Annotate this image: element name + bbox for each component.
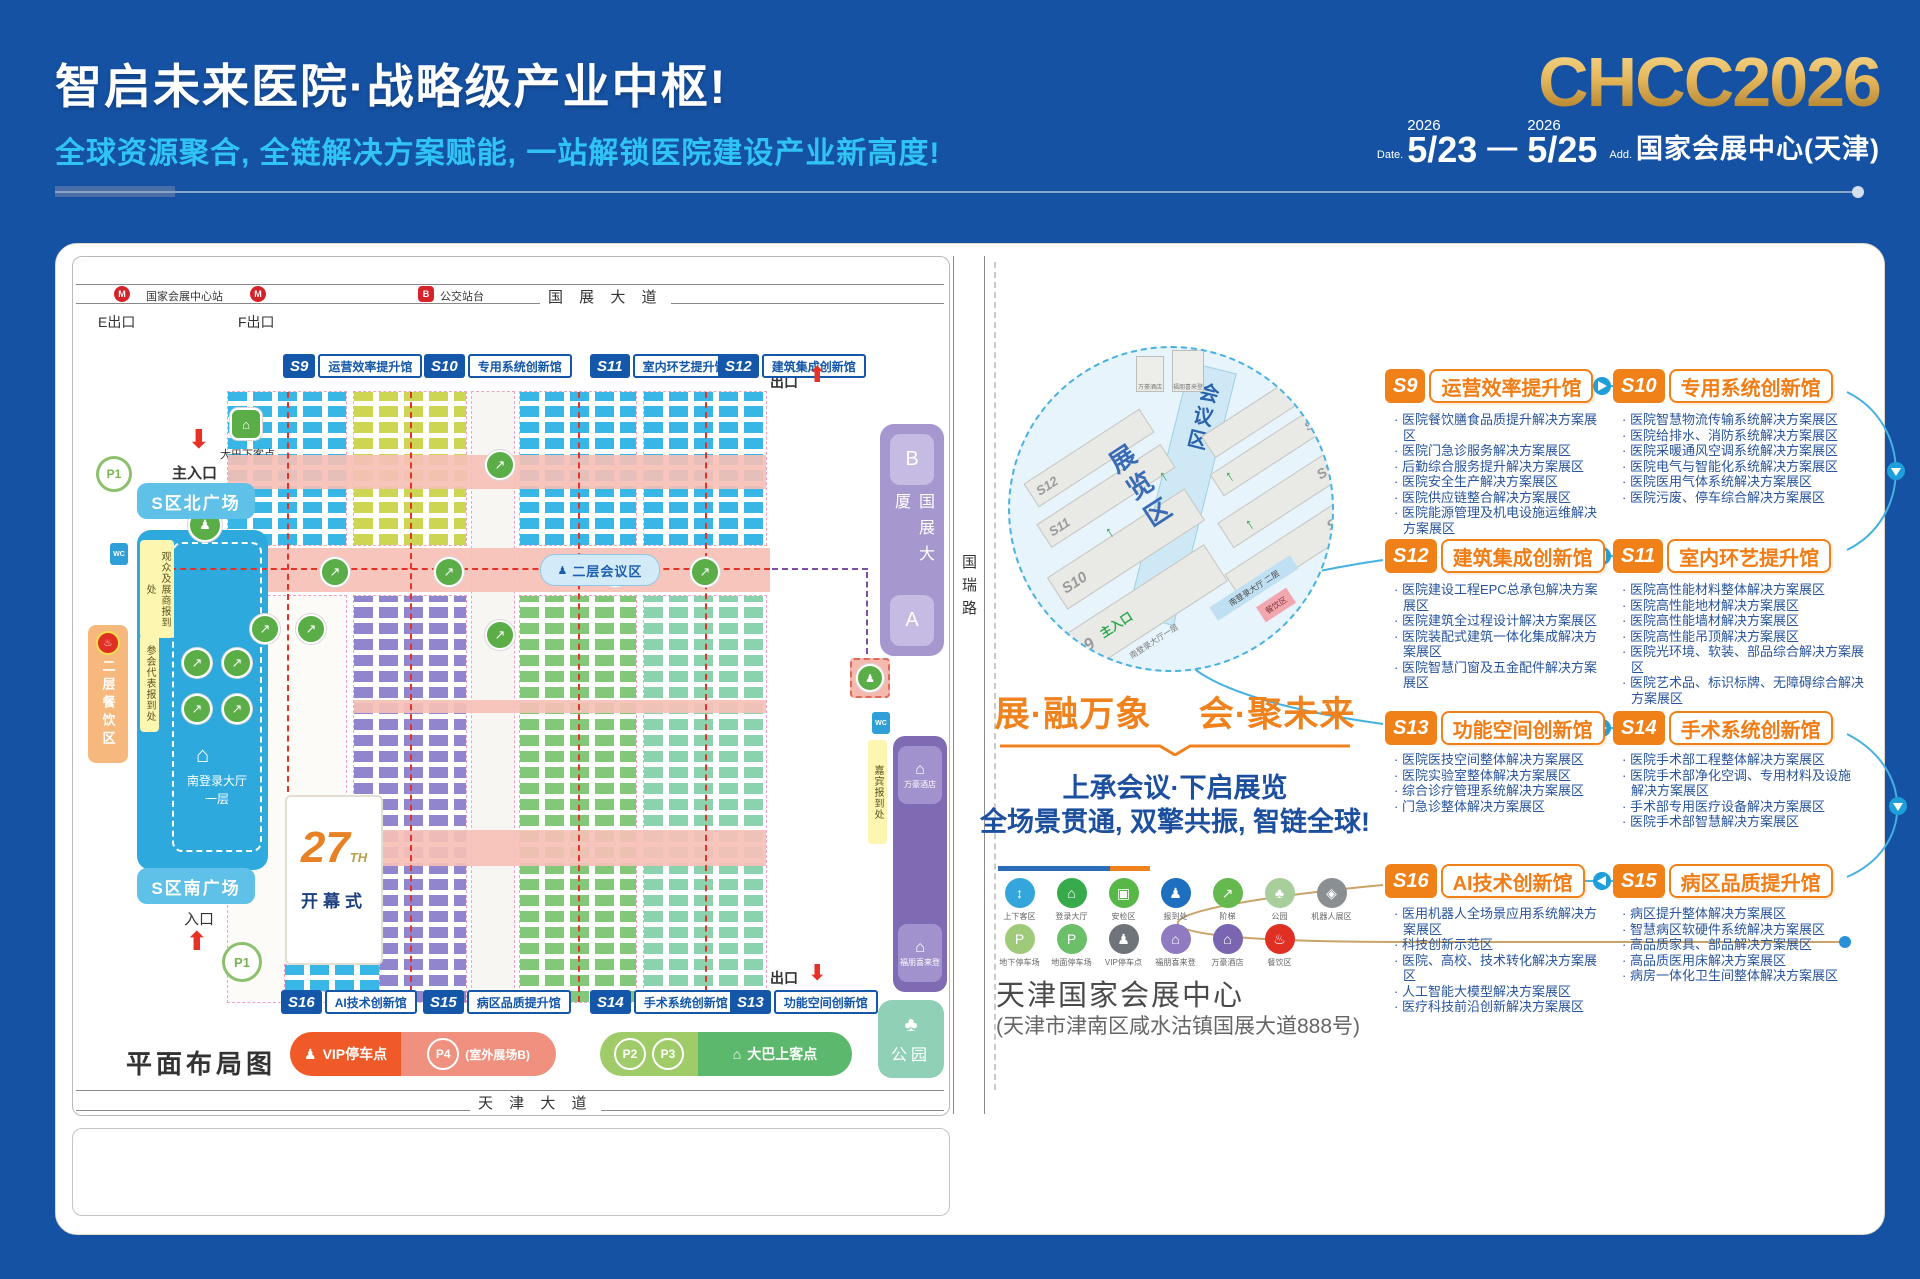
- hall-name: 手术系统创新馆: [634, 990, 738, 1014]
- list-item: 综合诊疗管理系统解决方案展区: [1390, 783, 1608, 799]
- date-end: 20265/25: [1527, 118, 1597, 167]
- guest-registration-label: 嘉宾报到处: [868, 740, 887, 844]
- legend-label: 登录大厅: [1049, 910, 1094, 921]
- p1-parking-icon: P1: [96, 456, 132, 492]
- list-item: 高品质家具、部品解决方案展区: [1618, 937, 1868, 953]
- north-plaza: S区北广场: [137, 483, 255, 519]
- opening-label: 开幕式: [287, 887, 381, 912]
- hall-badge: S11: [590, 354, 630, 378]
- vip-parking-label: VIP停车点: [323, 1044, 388, 1064]
- legend-label: 机器人展区: [1309, 910, 1354, 921]
- opening-27: 27: [301, 823, 350, 872]
- exit-e-label: E出口: [98, 312, 135, 332]
- section-badge: S11: [1613, 539, 1663, 573]
- hotel-marriott-label: 万豪酒店: [904, 779, 936, 790]
- list-item: 医院高性能材料整体解决方案展区: [1618, 582, 1868, 598]
- list-item: 医院智慧物流传输系统解决方案展区: [1618, 412, 1863, 428]
- hall-label-s12: S12 建筑集成创新馆: [718, 354, 866, 378]
- escalator-icon: ↗: [182, 648, 212, 678]
- list-item: 医院光环境、软装、部品综合解决方案展区: [1618, 644, 1868, 675]
- list-item: 医院采暖通风空调系统解决方案展区: [1618, 443, 1863, 459]
- legend-label: 阶梯: [1205, 910, 1250, 921]
- list-item: 病房一体化卫生间整体解决方案展区: [1618, 968, 1868, 984]
- right-road-line: [953, 256, 954, 1114]
- venue-address: (天津市津南区咸水沽镇国展大道888号): [996, 1010, 1360, 1040]
- list-item: 病区提升整体解决方案展区: [1618, 906, 1868, 922]
- hall-label-s16: S16 AI技术创新馆: [281, 990, 417, 1014]
- section-title: 病区品质提升馆: [1669, 864, 1833, 898]
- underground-parking-icon: P: [1005, 924, 1035, 954]
- section-badge: S15: [1613, 864, 1665, 898]
- list-item: 医疗科技前沿创新解决方案展区: [1390, 999, 1608, 1015]
- exit-bottom-label: 出口: [770, 968, 798, 988]
- ncc-tower: B 国展大厦 A: [880, 424, 944, 656]
- slogan-right: 会·聚未来: [1199, 695, 1356, 734]
- list-item: 医院门急诊服务解决方案展区: [1390, 443, 1608, 459]
- section-badge: S10: [1613, 369, 1665, 403]
- dining-label: 二层餐饮区: [99, 659, 118, 749]
- chcc-logo: CHCC2026: [1538, 42, 1880, 122]
- opening-th: TH: [350, 850, 367, 865]
- slogan: 展·融万象 会·聚未来: [985, 686, 1365, 737]
- main-entrance-label: 主入口: [172, 462, 217, 483]
- section-badge: S16: [1385, 864, 1437, 898]
- section-s12: S12 建筑集成创新馆: [1385, 539, 1605, 573]
- food-icon: ♨: [96, 631, 120, 655]
- legend-label: 报到处: [1153, 910, 1198, 921]
- hotel-box: ⌂ 万豪酒店 ⌂ 福朋喜来登: [893, 736, 947, 992]
- legend-item: ♟VIP停车点: [1100, 924, 1147, 968]
- legend-item: ▣安检区: [1100, 878, 1147, 922]
- escalator-icon: ↗: [485, 450, 515, 480]
- hall-label-s11: S11 室内环艺提升馆: [590, 354, 737, 378]
- bus-stop-icon: B: [418, 286, 434, 302]
- south-plaza: S区南广场: [137, 868, 255, 904]
- hall-label-s13: S13 功能空间创新馆: [730, 990, 878, 1014]
- escalator-icon: ↗: [250, 614, 280, 644]
- legend-label: 上下客区: [997, 910, 1042, 921]
- section-s9: S9 运营效率提升馆: [1385, 369, 1593, 403]
- top-road-line: [76, 284, 944, 285]
- list-item: 医院能源管理及机电设施运维解决方案展区: [1390, 505, 1608, 536]
- section-s16-list: 医用机器人全场景应用系统解决方案展区科技创新示范区医院、高校、技术转化解决方案展…: [1390, 906, 1608, 1015]
- legend-item: ↕上下客区: [996, 878, 1043, 922]
- login-hall-icon: ⌂: [1057, 878, 1087, 908]
- hotel-fourpoints: ⌂ 福朋喜来登: [898, 924, 942, 982]
- legend-label: 地下停车场: [997, 956, 1042, 967]
- bus-pickup-label: 大巴上客点: [747, 1044, 817, 1064]
- guest-reg-gate: ♟: [850, 658, 890, 698]
- list-item: 门急诊整体解决方案展区: [1390, 799, 1608, 815]
- list-item: 医院高性能吊顶解决方案展区: [1618, 629, 1868, 645]
- p3-icon: P3: [652, 1038, 684, 1070]
- legend-bar-orange: [1110, 866, 1150, 871]
- legend-label: 万豪酒店: [1205, 956, 1250, 967]
- legend-label: VIP停车点: [1101, 956, 1146, 967]
- legend-item: ⌂福朋喜来登: [1152, 924, 1199, 968]
- legend-label: 安检区: [1101, 910, 1146, 921]
- opening-ceremony-box: 27TH 开幕式: [285, 795, 383, 965]
- p4-icon: P4: [427, 1038, 459, 1070]
- section-s14-list: 医院手术部工程整体解决方案展区医院手术部净化空调、专用材料及设施解决方案展区手术…: [1618, 752, 1858, 830]
- hall-name: 病区品质提升馆: [467, 990, 571, 1014]
- section-badge: S14: [1613, 711, 1665, 745]
- list-item: 医院、高校、技术转化解决方案展区: [1390, 953, 1608, 984]
- hall-name: 专用系统创新馆: [468, 354, 572, 378]
- legend-bar-blue: [998, 866, 1110, 871]
- tower-name: 国展大厦: [888, 493, 936, 587]
- login-floor-label: 一层: [172, 790, 262, 807]
- p4-seg: P4 (室外展场B): [401, 1032, 556, 1076]
- list-item: 医院手术部智慧解决方案展区: [1618, 814, 1858, 830]
- list-item: 医院装配式建筑一体化集成解决方案展区: [1390, 629, 1608, 660]
- list-item: 医院艺术品、标识标牌、无障碍综合解决方案展区: [1618, 675, 1868, 706]
- section-s16: S16 AI技术创新馆: [1385, 864, 1585, 898]
- route-line: [410, 392, 412, 1002]
- section-s15-list: 病区提升整体解决方案展区智慧病区软硬件系统解决方案展区高品质家具、部品解决方案展…: [1618, 906, 1868, 984]
- route-line: [705, 392, 707, 1002]
- hotel-marriott: ⌂ 万豪酒店: [898, 746, 942, 804]
- venue-name-cn: 天津国家会展中心: [996, 972, 1244, 1014]
- divider-line: [55, 191, 1860, 193]
- legend-label: 公园: [1257, 910, 1302, 921]
- right-road-label: 国瑞路: [958, 548, 979, 629]
- conference-area-label: 二层会议区: [572, 561, 642, 580]
- p1-parking-icon-2: P1: [222, 942, 262, 982]
- poster: 智启未来医院·战略级产业中枢! 全球资源聚合, 全链解决方案赋能, 一站解锁医院…: [0, 0, 1920, 1279]
- p4-note: (室外展场B): [465, 1046, 530, 1063]
- delegate-registration-label: 参会代表报到处: [140, 634, 159, 732]
- divider-dot: [1852, 186, 1864, 198]
- date-start: 20265/23: [1407, 118, 1477, 167]
- hall-label-s14: S14 手术系统创新馆: [590, 990, 738, 1014]
- route-line: [287, 392, 289, 792]
- section-s14: S14 手术系统创新馆: [1613, 711, 1833, 745]
- hotel-fourpoints-label: 福朋喜来登: [900, 957, 940, 968]
- list-item: 医院高性能地材解决方案展区: [1618, 598, 1868, 614]
- hotel-mini-2: 福朋喜来登: [1172, 350, 1204, 392]
- list-item: 后勤综合服务提升解决方案展区: [1390, 459, 1608, 475]
- list-item: 医院给排水、消防系统解决方案展区: [1618, 428, 1863, 444]
- people-icon: ♟: [558, 564, 569, 577]
- section-s10: S10 专用系统创新馆: [1613, 369, 1833, 403]
- bus-icon: ⌂: [733, 1046, 741, 1062]
- p2p3-seg: P2 P3: [600, 1032, 698, 1076]
- building-icon: ⌂: [196, 742, 209, 768]
- metro-icon-2: M: [250, 286, 266, 302]
- bottom-road-label: 天 津 大 道: [470, 1092, 601, 1113]
- main-corridor: [212, 548, 770, 592]
- list-item: 科技创新示范区: [1390, 937, 1608, 953]
- hall-badge: S16: [281, 990, 322, 1014]
- legend-row-2: P地下停车场 P地面停车场 ♟VIP停车点 ⌂福朋喜来登 ⌂万豪酒店 ♨餐饮区: [996, 924, 1303, 968]
- dining-area: ♨ 二层餐饮区: [88, 625, 128, 763]
- legend-label: 地面停车场: [1049, 956, 1094, 967]
- sub-slogan-2: 全场景贯通, 双擎共振, 智链全球!: [960, 800, 1390, 839]
- escalator-icon: ↗: [320, 557, 350, 587]
- visitor-registration-label: 观众及展商报到处: [140, 540, 174, 638]
- legend-item: ⌂万豪酒店: [1204, 924, 1251, 968]
- section-s13: S13 功能空间创新馆: [1385, 711, 1605, 745]
- hall-badge: S9: [283, 354, 315, 378]
- section-s9-list: 医院餐饮膳食品质提升解决方案展区医院门急诊服务解决方案展区后勤综合服务提升解决方…: [1390, 412, 1608, 536]
- marriott-icon: ⌂: [1213, 924, 1243, 954]
- venue-name: 国家会展中心(天津): [1636, 127, 1880, 166]
- list-item: 医院污废、停车综合解决方案展区: [1618, 490, 1863, 506]
- wc-icon: WC: [110, 543, 128, 565]
- list-item: 医院建筑全过程设计解决方案展区: [1390, 613, 1608, 629]
- main-entrance-arrow-icon: ⬇: [188, 424, 210, 455]
- section-title: 专用系统创新馆: [1669, 369, 1833, 403]
- section-badge: S12: [1385, 539, 1437, 573]
- legend-item: ↗阶梯: [1204, 878, 1251, 922]
- hall-label-s9: S9 运营效率提升馆: [283, 354, 422, 378]
- escalator-icon: ↗: [222, 694, 252, 724]
- date-dash: —: [1487, 131, 1517, 165]
- escalator-icon: ↗: [182, 694, 212, 724]
- hall-name: AI技术创新馆: [325, 990, 417, 1014]
- registration-icon: ♟: [1161, 878, 1191, 908]
- legend-item: ♣公园: [1256, 878, 1303, 922]
- pickup-zone-icon: ↕: [1005, 878, 1035, 908]
- vip-parking-icon: ♟: [1109, 924, 1139, 954]
- legend-item: ♟报到处: [1152, 878, 1199, 922]
- section-s11-list: 医院高性能材料整体解决方案展区医院高性能地材解决方案展区医院高性能墙材解决方案展…: [1618, 582, 1868, 706]
- list-item: 医院智慧门窗及五金配件解决方案展区: [1390, 660, 1608, 691]
- park-label: 公园: [891, 1041, 931, 1065]
- section-s12-list: 医院建设工程EPC总承包解决方案展区医院建筑全过程设计解决方案展区医院装配式建筑…: [1390, 582, 1608, 691]
- escalator-icon: ↗: [296, 614, 326, 644]
- robot-zone-icon: ◈: [1317, 878, 1347, 908]
- section-s15: S15 病区品质提升馆: [1613, 864, 1833, 898]
- date-prefix: Date.: [1377, 149, 1403, 161]
- conference-area-pill: ♟ 二层会议区: [540, 554, 660, 586]
- exit-bottom-arrow-icon: ⬇: [808, 960, 826, 986]
- park-icon: ♣: [1265, 878, 1295, 908]
- metro-icon: M: [114, 286, 130, 302]
- list-item: 医院手术部工程整体解决方案展区: [1618, 752, 1858, 768]
- stairs-icon: ↗: [1213, 878, 1243, 908]
- section-badge: S13: [1385, 711, 1437, 745]
- legend-item: P地下停车场: [996, 924, 1043, 968]
- section-badge: S9: [1385, 369, 1425, 403]
- list-item: 医院医用气体系统解决方案展区: [1618, 474, 1863, 490]
- legend-label: 餐饮区: [1257, 956, 1302, 967]
- vip-person-icon: ♟: [304, 1046, 317, 1063]
- slogan-left: 展·融万象: [995, 695, 1152, 734]
- vip-parking-seg: ♟ VIP停车点: [290, 1032, 401, 1076]
- dining-icon: ♨: [1265, 924, 1295, 954]
- opening-number: 27TH: [287, 823, 381, 873]
- bus-platform-label: 公交站台: [440, 288, 484, 304]
- right-road-line2: [984, 256, 985, 1114]
- list-item: 医院餐饮膳食品质提升解决方案展区: [1390, 412, 1608, 443]
- tower-b: B: [890, 434, 934, 485]
- list-item: 医院手术部净化空调、专用材料及设施解决方案展区: [1618, 768, 1858, 799]
- station-label: 国家会展中心站: [146, 288, 223, 304]
- bus-pickup-seg: ⌂ 大巴上客点: [698, 1032, 852, 1076]
- list-item: 智慧病区软硬件系统解决方案展区: [1618, 922, 1868, 938]
- login-hall-label: 南登录大厅: [172, 772, 262, 789]
- list-item: 高品质医用床解决方案展区: [1618, 953, 1868, 969]
- vip-route-line: [772, 568, 868, 570]
- slogan-divider: [1000, 744, 1350, 756]
- legend-item: P地面停车场: [1048, 924, 1095, 968]
- hall-s16-booths: [285, 965, 379, 991]
- vip-parking-pill: ♟ VIP停车点 P4 (室外展场B): [290, 1032, 556, 1076]
- bus-drop-icon: ⌂: [230, 408, 262, 440]
- hall-label-s15: S15 病区品质提升馆: [423, 990, 571, 1014]
- section-title: 室内环艺提升馆: [1667, 539, 1831, 573]
- section-title: 建筑集成创新馆: [1441, 539, 1605, 573]
- list-item: 医院安全生产解决方案展区: [1390, 474, 1608, 490]
- exit-top-arrow-icon: ⬆: [808, 362, 826, 388]
- hall-name: 运营效率提升馆: [318, 354, 422, 378]
- surface-parking-icon: P: [1057, 924, 1087, 954]
- hall-badge: S12: [718, 354, 759, 378]
- hall-label-s10: S10 专用系统创新馆: [424, 354, 572, 378]
- list-item: 人工智能大模型解决方案展区: [1390, 984, 1608, 1000]
- section-s10-list: 医院智慧物流传输系统解决方案展区医院给排水、消防系统解决方案展区医院采暖通风空调…: [1618, 412, 1863, 505]
- page-subtitle: 全球资源聚合, 全链解决方案赋能, 一站解锁医院建设产业新高度!: [55, 128, 940, 172]
- section-title: 手术系统创新馆: [1669, 711, 1833, 745]
- hall-badge: S15: [423, 990, 464, 1014]
- list-item: 手术部专用医疗设备解决方案展区: [1618, 799, 1858, 815]
- vip-route-line: [866, 572, 868, 654]
- bottom-road-line: [76, 1090, 944, 1091]
- tree-icon: ♣: [904, 1014, 917, 1037]
- tower-a: A: [890, 595, 934, 646]
- escalator-icon: ↗: [485, 620, 515, 650]
- top-road-label: 国 展 大 道: [540, 286, 671, 307]
- wc-icon-2: WC: [872, 712, 890, 734]
- plan-caption: 平面布局图: [126, 1044, 276, 1081]
- exit-f-label: F出口: [238, 312, 275, 332]
- page-title: 智启未来医院·战略级产业中枢!: [55, 48, 727, 117]
- hotel-mini: 万豪酒店: [1136, 356, 1164, 392]
- legend-row-1: ↕上下客区 ⌂登录大厅 ▣安检区 ♟报到处 ↗阶梯 ♣公园 ◈机器人展区: [996, 878, 1355, 922]
- bus-pickup-pill: P2 P3 ⌂ 大巴上客点: [600, 1032, 852, 1076]
- list-item: 医院医技空间整体解决方案展区: [1390, 752, 1608, 768]
- circle-dining: 餐饮区: [1256, 588, 1296, 623]
- section-s11: S11 室内环艺提升馆: [1613, 539, 1831, 573]
- list-item: 医院高性能墙材解决方案展区: [1618, 613, 1868, 629]
- gate-icon: ♟: [856, 664, 884, 692]
- addr-prefix: Add.: [1609, 149, 1632, 161]
- p2-icon: P2: [614, 1038, 646, 1070]
- legend-item: ◈机器人展区: [1308, 878, 1355, 922]
- section-title: 运营效率提升馆: [1429, 369, 1593, 403]
- hall-badge: S14: [590, 990, 631, 1014]
- hotel-icon: ⌂: [915, 939, 925, 957]
- escalator-icon: ↗: [434, 557, 464, 587]
- escalator-icon: ↗: [222, 648, 252, 678]
- list-item: 医院建设工程EPC总承包解决方案展区: [1390, 582, 1608, 613]
- legend-item: ♨餐饮区: [1256, 924, 1303, 968]
- bottom-strip-frame: [72, 1128, 950, 1216]
- list-item: 医院实验室整体解决方案展区: [1390, 768, 1608, 784]
- section-title: AI技术创新馆: [1441, 864, 1585, 898]
- entrance-arrow-icon: ⬆: [186, 926, 208, 957]
- security-check-icon: ▣: [1109, 878, 1139, 908]
- legend-label: 福朋喜来登: [1153, 956, 1198, 967]
- section-title: 功能空间创新馆: [1441, 711, 1605, 745]
- escalator-icon: ↗: [690, 557, 720, 587]
- hall-badge: S13: [730, 990, 771, 1014]
- park-box: ♣ 公园: [878, 1000, 944, 1078]
- list-item: 医用机器人全场景应用系统解决方案展区: [1390, 906, 1608, 937]
- hall-name: 功能空间创新馆: [774, 990, 878, 1014]
- list-item: 医院供应链整合解决方案展区: [1390, 490, 1608, 506]
- list-item: 医院电气与智能化系统解决方案展区: [1618, 459, 1863, 475]
- hotel-icon: ⌂: [915, 761, 925, 779]
- section-s13-list: 医院医技空间整体解决方案展区医院实验室整体解决方案展区综合诊疗管理系统解决方案展…: [1390, 752, 1608, 814]
- date-line: Date. 20265/23 — 20265/25 Add. 国家会展中心(天津…: [1377, 118, 1880, 167]
- route-line: [578, 392, 580, 1002]
- hall-badge: S10: [424, 354, 465, 378]
- venue-3d-map: 会议区 万豪酒店 福朋喜来登 S12 S11 S10 S9 S13 S14 S1…: [1008, 346, 1334, 672]
- legend-item: ⌂登录大厅: [1048, 878, 1095, 922]
- fourpoints-icon: ⌂: [1161, 924, 1191, 954]
